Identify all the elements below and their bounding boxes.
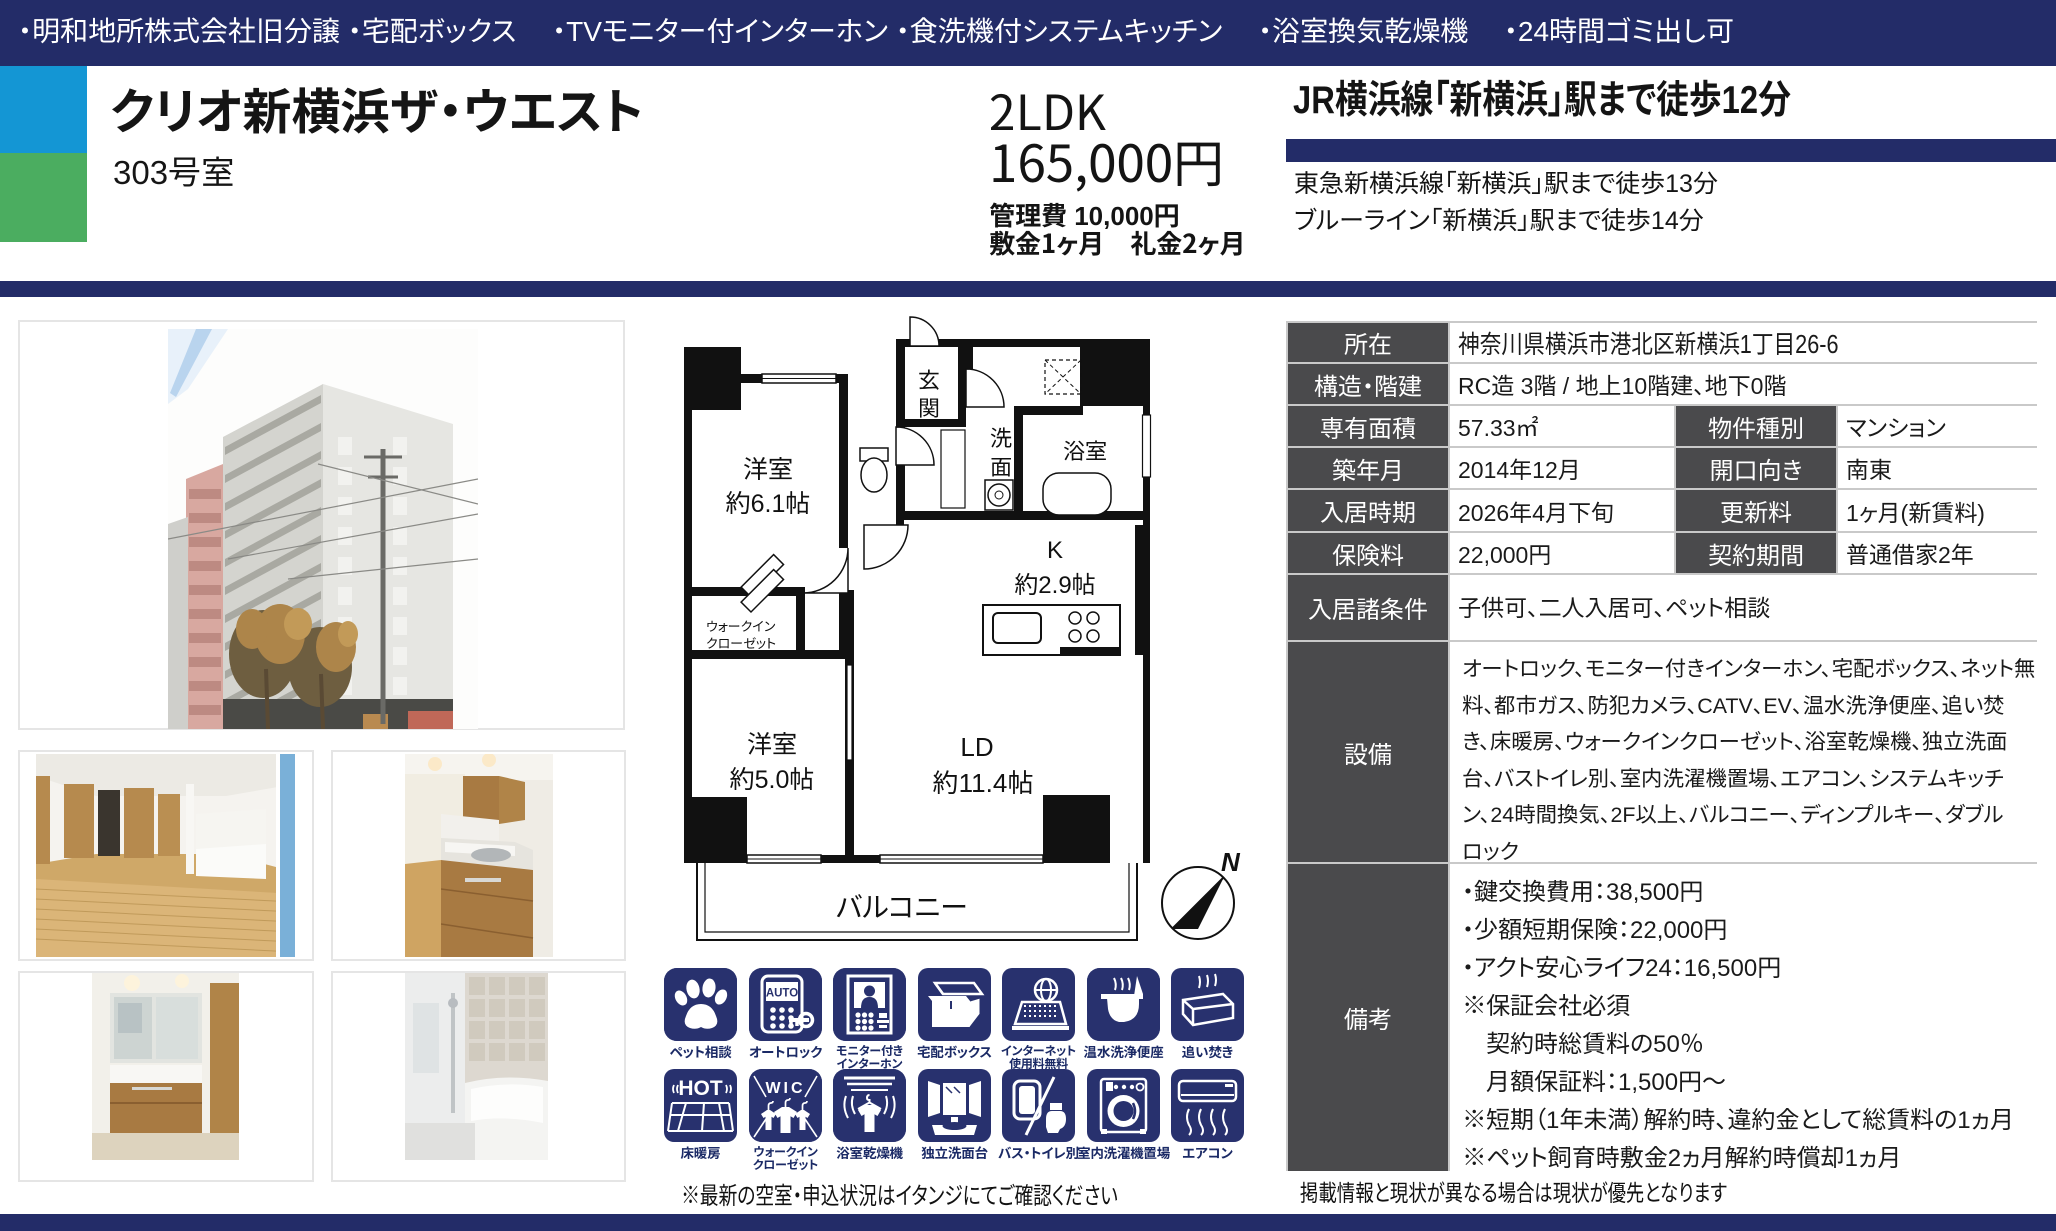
svg-text:LD: LD xyxy=(960,732,993,762)
svg-text:クローゼット: クローゼット xyxy=(706,636,776,651)
svg-text:バルコニー: バルコニー xyxy=(836,892,968,923)
svg-text:ウォークイン: ウォークイン xyxy=(706,619,775,634)
svg-text:K: K xyxy=(1047,537,1063,564)
svg-text:洋室: 洋室 xyxy=(743,456,793,484)
svg-text:約2.9帖: 約2.9帖 xyxy=(1014,572,1095,599)
svg-text:玄: 玄 xyxy=(918,368,940,393)
svg-text:約11.4帖: 約11.4帖 xyxy=(933,768,1034,798)
svg-text:浴室: 浴室 xyxy=(1063,439,1107,464)
svg-text:N: N xyxy=(1221,847,1241,877)
svg-text:面: 面 xyxy=(990,455,1012,480)
svg-text:HOT: HOT xyxy=(678,1077,723,1100)
svg-text:洋室: 洋室 xyxy=(747,731,797,759)
svg-text:AUTO: AUTO xyxy=(766,988,798,1000)
svg-text:洗: 洗 xyxy=(990,426,1012,451)
svg-text:WIC: WIC xyxy=(765,1080,805,1097)
svg-text:約5.0帖: 約5.0帖 xyxy=(730,766,815,794)
svg-text:約6.1帖: 約6.1帖 xyxy=(726,490,811,518)
svg-text:関: 関 xyxy=(918,396,940,421)
